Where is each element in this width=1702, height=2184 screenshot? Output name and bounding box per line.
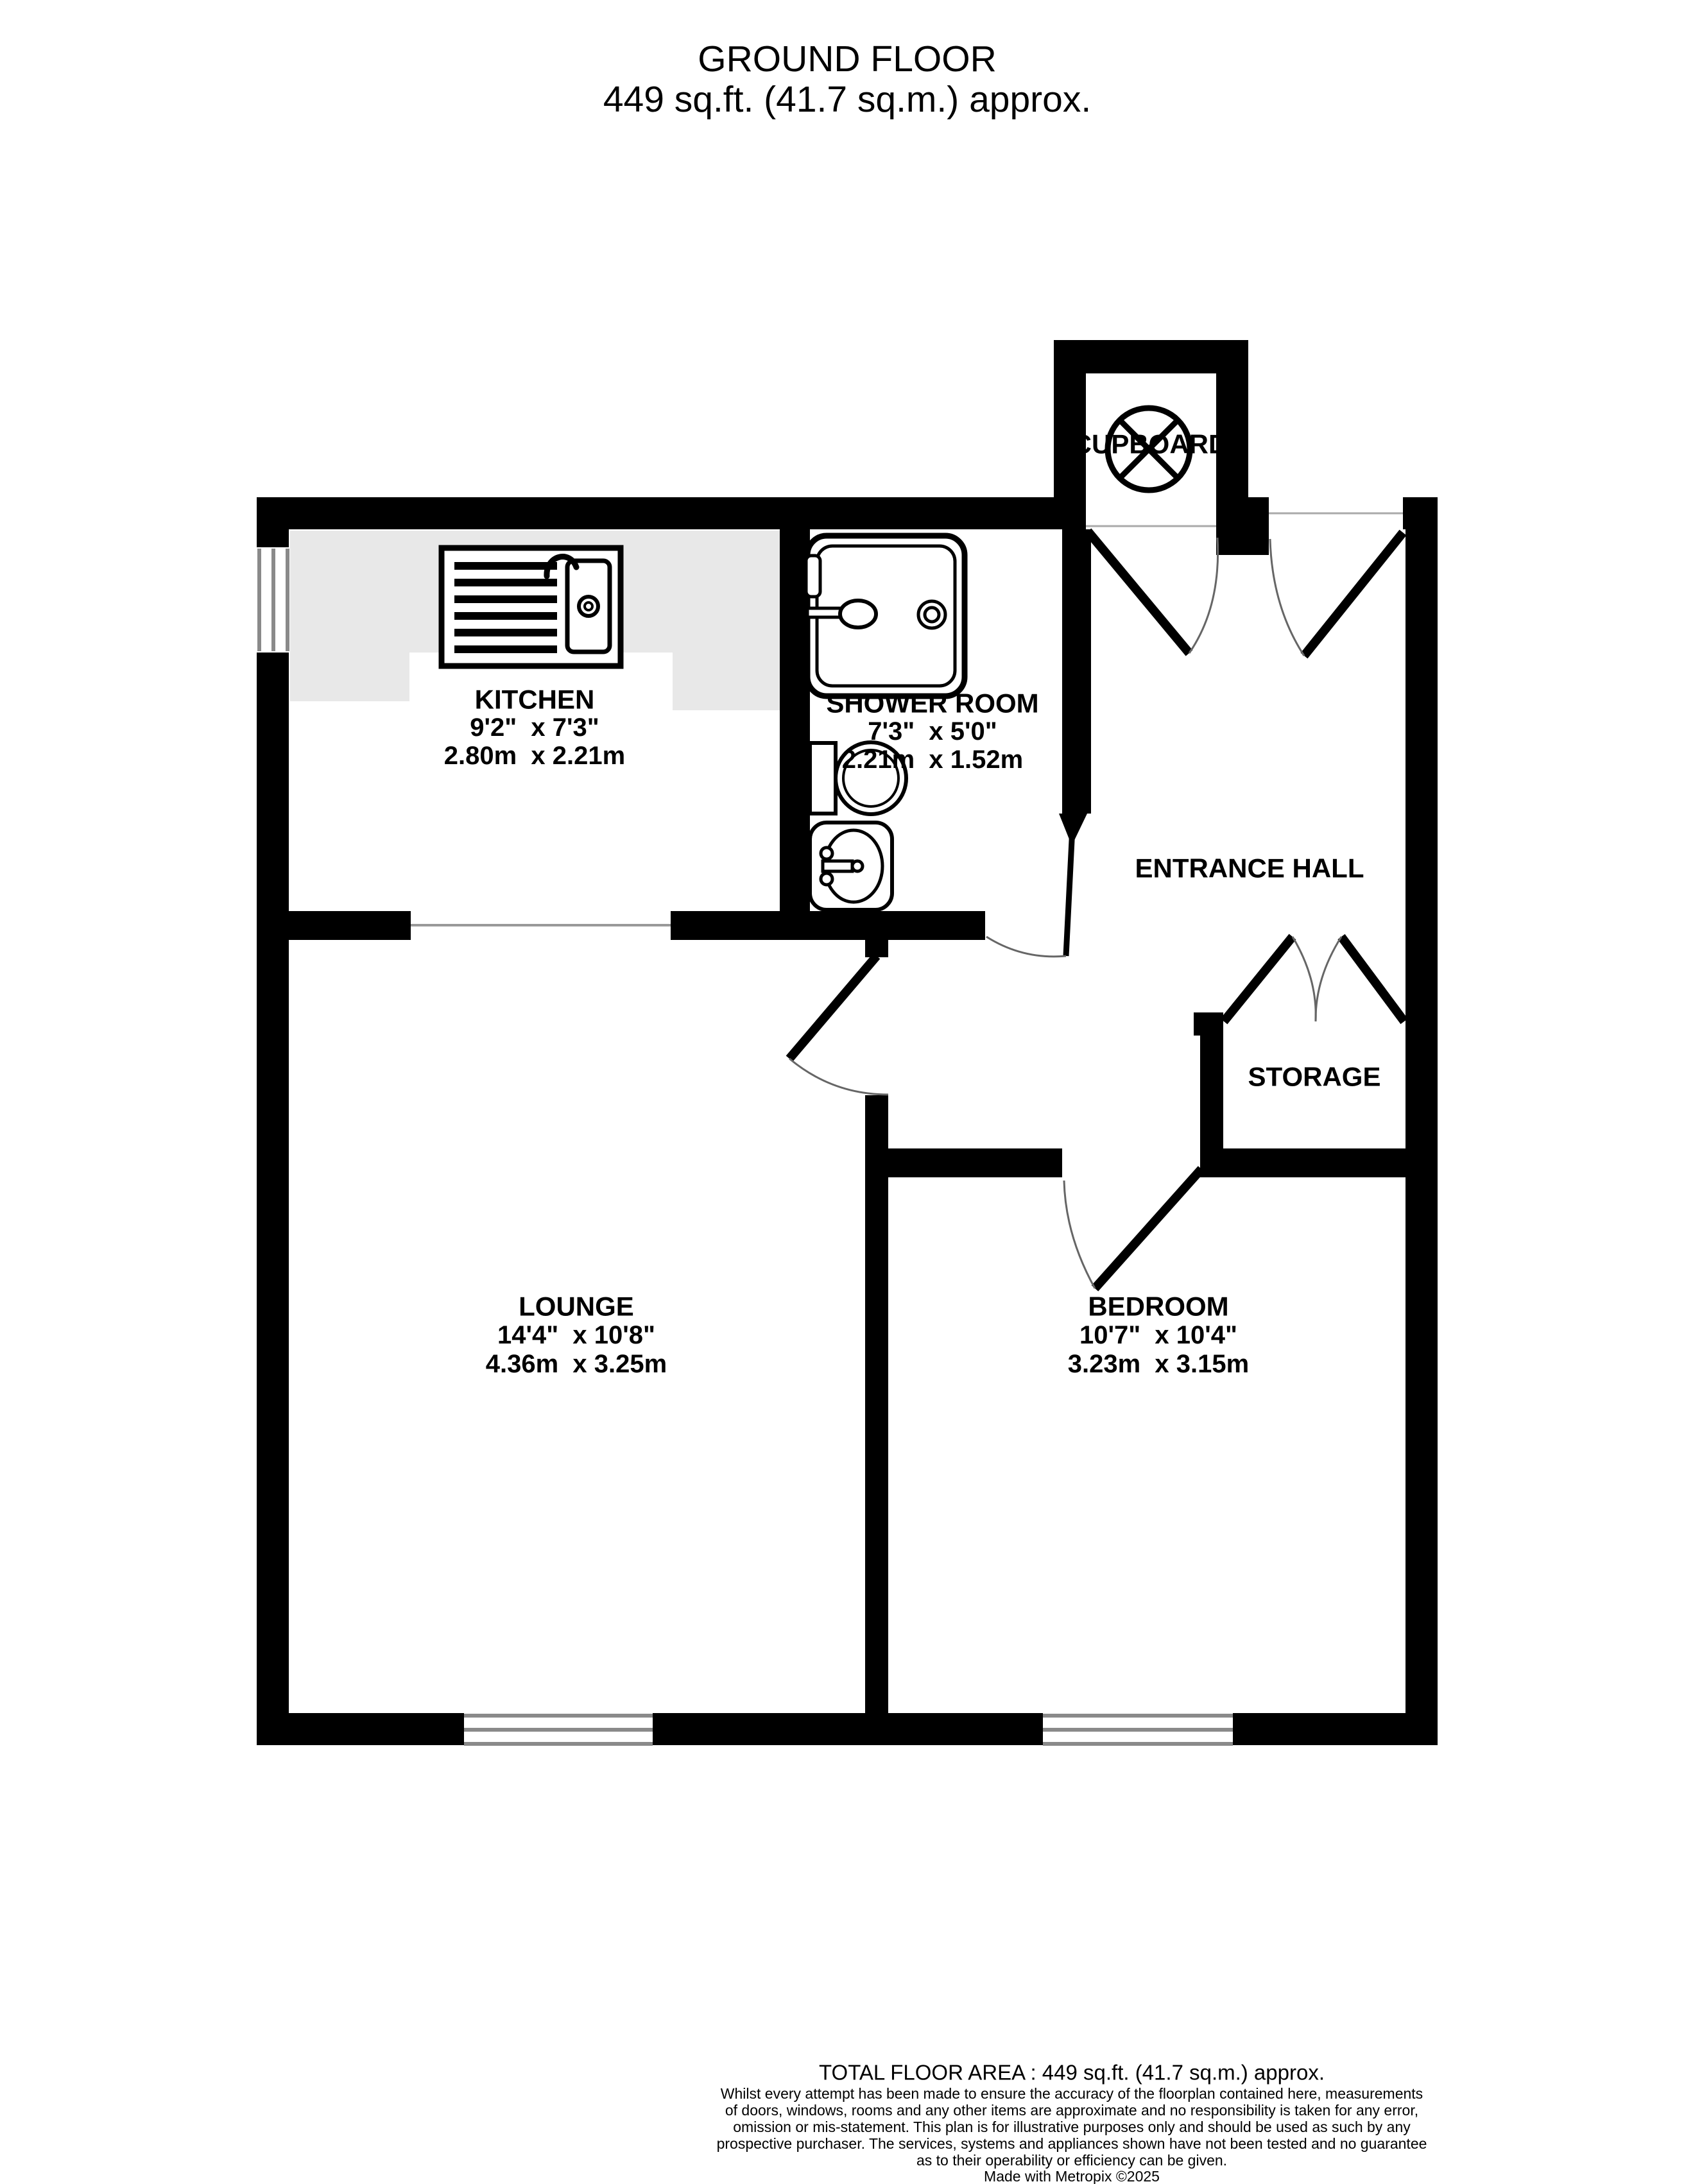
drainer-stripe xyxy=(454,562,557,570)
sink-drain-inner xyxy=(585,602,592,610)
room-name: ENTRANCE HALL xyxy=(1135,853,1364,883)
kitchen-counter-right xyxy=(673,653,780,710)
wall-storage-bottom xyxy=(1200,1148,1405,1177)
room-dim-imperial: 14'4" x 10'8" xyxy=(497,1321,655,1349)
room-label-bedroom: BEDROOM 10'7" x 10'4" 3.23m x 3.15m xyxy=(1068,1292,1249,1379)
room-dim-metric: 2.80m x 2.21m xyxy=(444,742,625,770)
shower-arm xyxy=(807,608,843,617)
floorplan-page: GROUND FLOOR 449 sq.ft. (41.7 sq.m.) app… xyxy=(0,0,1702,2184)
room-name: STORAGE xyxy=(1248,1062,1381,1092)
wall-lounge-bedroom-divider xyxy=(865,1095,888,1745)
room-label-entrance-hall: ENTRANCE HALL xyxy=(1135,853,1364,883)
room-label-cupboard: CUPBOARD xyxy=(1072,429,1228,459)
floorplan-canvas: GROUND FLOOR 449 sq.ft. (41.7 sq.m.) app… xyxy=(0,0,1702,2184)
wall-kitchen-shower-bottom xyxy=(671,911,985,940)
kitchen-sink-icon xyxy=(442,548,621,666)
kitchen-counter-left xyxy=(290,653,409,701)
page-background xyxy=(0,0,1702,2184)
wall-lounge-door-pier xyxy=(865,940,888,957)
basin-tap-knob xyxy=(852,861,863,871)
shower-wall-fitting xyxy=(806,556,820,597)
wall-bedroom-top xyxy=(865,1148,1062,1177)
total-floor-area: TOTAL FLOOR AREA : 449 sq.ft. (41.7 sq.m… xyxy=(819,2061,1325,2085)
room-label-storage: STORAGE xyxy=(1248,1062,1381,1092)
shower-control-inner xyxy=(925,608,939,622)
room-dim-metric: 3.23m x 3.15m xyxy=(1068,1350,1249,1378)
wall-top-left xyxy=(257,497,1086,529)
disclaimer-line: as to their operability or efficiency ca… xyxy=(916,2152,1227,2169)
drainer-stripe xyxy=(454,612,557,620)
basin-tap-handle xyxy=(821,873,832,885)
wall-shower-hall-divider xyxy=(1062,529,1091,814)
wall-cupboard-top xyxy=(1054,340,1248,373)
title-line2: 449 sq.ft. (41.7 sq.m.) approx. xyxy=(603,79,1091,120)
title-line1: GROUND FLOOR xyxy=(698,38,997,80)
window-bedroom xyxy=(1043,1712,1233,1746)
basin-icon xyxy=(810,823,892,910)
room-name: SHOWER ROOM xyxy=(826,688,1038,719)
room-dim-metric: 2.21m x 1.52m xyxy=(842,746,1023,774)
room-dim-metric: 4.36m x 3.25m xyxy=(486,1350,667,1378)
window-lounge xyxy=(464,1712,653,1746)
room-dim-imperial: 10'7" x 10'4" xyxy=(1079,1321,1237,1349)
wall-left xyxy=(257,497,289,1745)
window-kitchen-left xyxy=(255,547,290,653)
disclaimer-line: Whilst every attempt has been made to en… xyxy=(721,2085,1423,2102)
shower-icon xyxy=(806,536,965,696)
room-dim-imperial: 7'3" x 5'0" xyxy=(868,717,997,746)
room-name: KITCHEN xyxy=(475,685,595,715)
room-name: BEDROOM xyxy=(1088,1292,1228,1322)
drainer-stripe xyxy=(454,629,557,636)
shower-head-icon xyxy=(840,601,876,627)
disclaimer-line: of doors, windows, rooms and any other i… xyxy=(725,2102,1418,2119)
room-name: LOUNGE xyxy=(519,1292,634,1322)
credit-line: Made with Metropix ©2025 xyxy=(984,2168,1160,2184)
basin-spout xyxy=(823,861,852,871)
drainer-stripe xyxy=(454,579,557,586)
toilet-cistern xyxy=(810,743,836,814)
wall-kitchen-bottom-left xyxy=(257,911,411,940)
wall-bottom xyxy=(257,1713,1438,1745)
room-dim-imperial: 9'2" x 7'3" xyxy=(470,713,599,742)
basin-tap-handle xyxy=(821,848,832,859)
drainer-stripe xyxy=(454,595,557,603)
wall-right xyxy=(1405,497,1438,1745)
room-name: CUPBOARD xyxy=(1072,429,1228,459)
disclaimer-line: omission or mis-statement. This plan is … xyxy=(733,2119,1411,2135)
drainer-stripe xyxy=(454,645,557,653)
disclaimer-line: prospective purchaser. The services, sys… xyxy=(717,2135,1427,2152)
